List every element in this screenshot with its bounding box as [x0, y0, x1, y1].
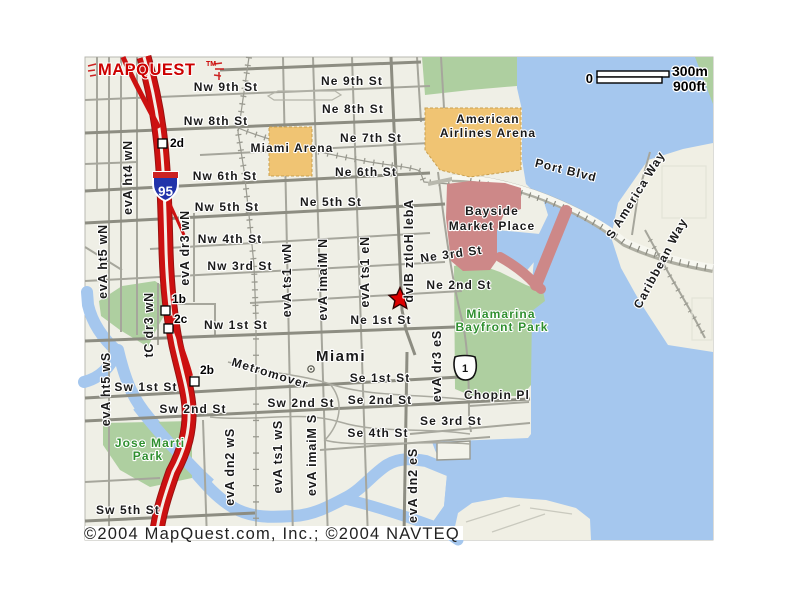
svg-text:Ne 6th St: Ne 6th St [335, 165, 397, 179]
svg-text:©2004 MapQuest.com, Inc.; ©200: ©2004 MapQuest.com, Inc.; ©2004 NAVTEQ [84, 525, 460, 543]
svg-text:Ne 9th St: Ne 9th St [321, 74, 383, 88]
svg-text:Ne 8th St: Ne 8th St [322, 102, 384, 116]
svg-text:evA imaiM N: evA imaiM N [316, 238, 330, 321]
svg-text:evA dn2 wS: evA dn2 wS [223, 428, 237, 506]
svg-text:Miamarina: Miamarina [466, 307, 535, 321]
svg-text:Sw 5th St: Sw 5th St [96, 503, 160, 517]
svg-text:Nw 8th St: Nw 8th St [184, 114, 249, 128]
svg-text:Nw 9th St: Nw 9th St [194, 80, 259, 94]
svg-text:Ne 1st St: Ne 1st St [350, 313, 411, 327]
svg-text:Market Place: Market Place [449, 219, 536, 233]
svg-text:evA ht4 wN: evA ht4 wN [121, 140, 135, 215]
svg-text:Nw 3rd St: Nw 3rd St [207, 259, 272, 273]
svg-text:2b: 2b [200, 363, 214, 377]
svg-text:2c: 2c [174, 312, 188, 326]
svg-text:Se 3rd St: Se 3rd St [420, 414, 482, 428]
svg-text:Bayside: Bayside [465, 204, 519, 218]
svg-text:Sw 1st St: Sw 1st St [114, 380, 177, 394]
svg-text:Se 4th St: Se 4th St [347, 426, 408, 440]
svg-text:evA ts1 wN: evA ts1 wN [280, 243, 294, 317]
svg-text:Sw 2nd St: Sw 2nd St [267, 396, 334, 410]
svg-text:Sw 2nd St: Sw 2nd St [159, 402, 226, 416]
svg-text:Chopin Pl: Chopin Pl [464, 388, 530, 402]
svg-text:0: 0 [586, 71, 593, 86]
svg-text:tC dr3 wN: tC dr3 wN [142, 292, 156, 358]
svg-text:Ne 7th St: Ne 7th St [340, 131, 402, 145]
svg-text:95: 95 [158, 184, 174, 199]
svg-text:1: 1 [462, 363, 468, 375]
svg-text:Se 1st St: Se 1st St [350, 371, 411, 385]
svg-text:Nw 4th St: Nw 4th St [198, 232, 263, 246]
svg-text:American: American [456, 112, 520, 126]
svg-text:Miami Arena: Miami Arena [250, 141, 333, 155]
svg-text:Nw 5th St: Nw 5th St [195, 200, 260, 214]
svg-text:Bayfront Park: Bayfront Park [456, 320, 549, 334]
svg-text:evA imaiM S: evA imaiM S [305, 414, 319, 496]
svg-text:Miami: Miami [316, 348, 366, 365]
svg-text:Nw 1st St: Nw 1st St [204, 318, 268, 332]
svg-text:evA dr3 wN: evA dr3 wN [178, 210, 192, 286]
svg-text:evA ht5 wN: evA ht5 wN [96, 224, 110, 299]
svg-text:Ne 2nd St: Ne 2nd St [426, 278, 491, 292]
svg-text:Nw 6th St: Nw 6th St [193, 169, 258, 183]
svg-text:Ne 5th St: Ne 5th St [300, 195, 362, 209]
svg-text:900ft: 900ft [673, 78, 706, 94]
svg-text:Jose Marti: Jose Marti [115, 436, 185, 450]
svg-text:TM: TM [206, 61, 216, 68]
svg-text:1b: 1b [172, 292, 186, 306]
svg-text:dvlB ztloH lebA: dvlB ztloH lebA [402, 199, 416, 303]
svg-text:Se 2nd St: Se 2nd St [348, 393, 413, 407]
svg-text:2d: 2d [170, 136, 184, 150]
svg-text:evA dn2 eS: evA dn2 eS [406, 448, 420, 523]
svg-text:Park: Park [133, 449, 163, 463]
svg-text:evA ts1 eN: evA ts1 eN [358, 236, 372, 307]
svg-text:evA ts1 wS: evA ts1 wS [271, 420, 285, 494]
svg-text:Airlines Arena: Airlines Arena [440, 126, 536, 140]
svg-text:MAPQUEST: MAPQUEST [98, 61, 196, 79]
svg-text:300m: 300m [672, 63, 708, 79]
svg-text:evA ht5 wS: evA ht5 wS [99, 352, 113, 426]
svg-text:evA dr3 eS: evA dr3 eS [430, 330, 444, 402]
